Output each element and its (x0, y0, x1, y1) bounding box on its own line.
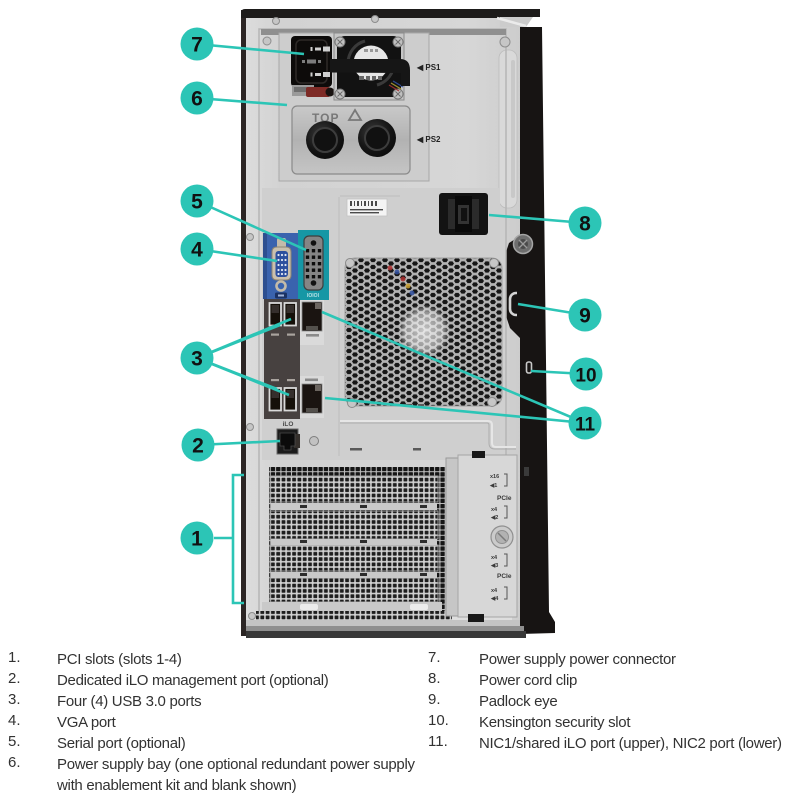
svg-text:◀1: ◀1 (489, 482, 497, 489)
svg-text:8: 8 (579, 213, 591, 236)
svg-text:3: 3 (191, 348, 203, 371)
svg-text:6: 6 (191, 88, 203, 111)
svg-text:2: 2 (192, 435, 204, 458)
svg-text:◀2: ◀2 (490, 514, 498, 521)
svg-text:1: 1 (191, 528, 203, 551)
svg-text:x4: x4 (491, 507, 498, 513)
svg-text:4: 4 (191, 239, 203, 262)
svg-text:5: 5 (191, 191, 203, 214)
svg-text:x16: x16 (490, 474, 499, 480)
svg-text:◀3: ◀3 (490, 562, 498, 569)
svg-text:11: 11 (575, 415, 596, 436)
svg-text:PCIe: PCIe (497, 573, 512, 580)
svg-text:x4: x4 (491, 588, 498, 594)
svg-text:iLO: iLO (283, 421, 294, 428)
svg-text:10: 10 (575, 366, 596, 387)
svg-text:◀ PS2: ◀ PS2 (416, 135, 441, 144)
svg-text:IOIOI: IOIOI (307, 293, 320, 299)
svg-text:PCIe: PCIe (497, 495, 512, 502)
svg-text:7: 7 (191, 34, 203, 57)
svg-text:x4: x4 (491, 555, 498, 561)
svg-text:◀ PS1: ◀ PS1 (416, 63, 441, 72)
svg-text:9: 9 (579, 305, 591, 328)
svg-text:◀4: ◀4 (490, 595, 499, 602)
